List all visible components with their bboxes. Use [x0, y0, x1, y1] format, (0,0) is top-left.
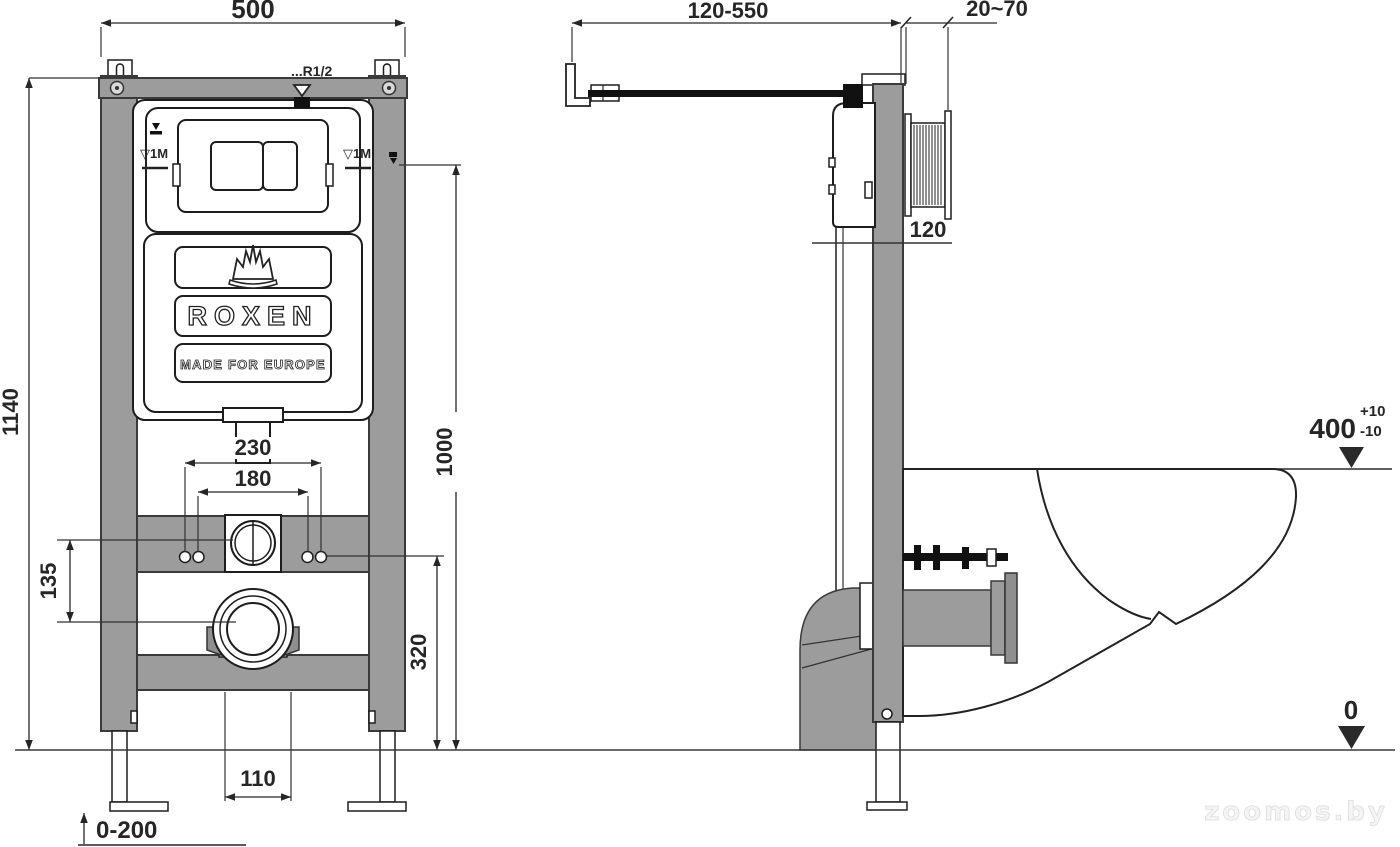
- front-view: ▽1M ▽1M ROXEN MADE FOR EUROPE ...R1/2: [0, 0, 468, 845]
- bracket-rod: [588, 90, 844, 97]
- post-notch-right: [369, 711, 375, 723]
- floor-level-marker: 0: [1338, 695, 1365, 749]
- dim-wall-finish-range: 20~70: [901, 0, 1028, 110]
- plate-clip-right: [326, 164, 333, 186]
- frame-post-side: [873, 84, 903, 722]
- dim-320-label: 320: [406, 634, 431, 671]
- dim-frame-height: 1140: [0, 78, 102, 750]
- level-triangle-400: [1339, 447, 1364, 468]
- elbow-coupling: [860, 583, 873, 649]
- brand-name: ROXEN: [187, 301, 318, 331]
- dim-width-label: 500: [231, 0, 274, 24]
- dim-0-200-label: 0-200: [96, 817, 157, 844]
- dim-135-label: 135: [36, 563, 61, 600]
- foot-side: [867, 802, 907, 810]
- wall-hook: [566, 64, 590, 106]
- frame-post-left: [101, 76, 137, 731]
- dim-120-label: 120: [910, 217, 947, 242]
- flush-plate: [173, 120, 333, 212]
- brand-logo: ROXEN MADE FOR EUROPE: [175, 245, 331, 382]
- dim-outer-spacing-label: 230: [235, 435, 272, 460]
- level-triangle-0: [1338, 726, 1365, 749]
- flush-sleeve: [905, 111, 951, 219]
- plate-center-marker-icon: [389, 152, 397, 157]
- drain-outlet: [207, 589, 299, 669]
- water-inlet-thread-label: ...R1/2: [291, 63, 332, 79]
- dim-400-label: 400: [1309, 413, 1356, 444]
- wall-bracket: [566, 64, 863, 108]
- inlet-flange: [225, 515, 281, 572]
- drawing-canvas: ▽1M ▽1M ROXEN MADE FOR EUROPE ...R1/2: [0, 0, 1400, 847]
- side-view: 120-550 20~70 120 400 +10 -10: [566, 0, 1392, 810]
- top-crossbar: [99, 78, 407, 98]
- dim-20-70-label: 20~70: [966, 0, 1028, 21]
- dim-leg-adjustment: 0-200: [78, 813, 246, 845]
- dim-outlet-offset: 110: [225, 692, 291, 801]
- installation-frame-technical-drawing: ▽1M ▽1M ROXEN MADE FOR EUROPE ...R1/2: [0, 0, 1400, 847]
- dim-inner-spacing-label: 180: [235, 466, 272, 491]
- dim-height-label: 1140: [0, 388, 23, 436]
- plate-clip-left: [173, 164, 180, 186]
- dim-1000-label: 1000: [432, 428, 457, 477]
- level-icon-left-base: [150, 131, 162, 135]
- crossbar-bolt-left-center: [115, 86, 119, 90]
- flush-button-small[interactable]: [263, 142, 297, 190]
- watermark: zoomos.by: [1204, 797, 1388, 827]
- brand-tagline: MADE FOR EUROPE: [180, 357, 326, 372]
- bowl-height-marker: 400 +10 -10: [1309, 403, 1385, 468]
- dim-400-tol-plus: +10: [1360, 403, 1385, 420]
- leg-side: [876, 722, 900, 802]
- post-adjust-hole: [882, 709, 892, 719]
- dim-0-label: 0: [1344, 695, 1358, 725]
- dim-frame-width: 500: [101, 0, 405, 57]
- rod-clamp-block: [843, 84, 863, 108]
- level-mark-left-label: ▽1M: [140, 146, 168, 161]
- dim-bracket-range: 120-550: [572, 0, 906, 84]
- dim-120-550-label: 120-550: [688, 0, 769, 23]
- crossbar-bolt-right-center: [387, 86, 391, 90]
- inlet-connection-block: [294, 97, 310, 108]
- cistern-side: [829, 103, 875, 227]
- dim-400-tol-minus: -10: [1360, 423, 1382, 440]
- post-notch-left: [131, 711, 137, 723]
- level-mark-right-label: ▽1M: [343, 146, 371, 161]
- flush-bend-stub: [223, 408, 283, 422]
- frame-post-right: [369, 76, 405, 731]
- flush-button-large[interactable]: [211, 142, 263, 190]
- dim-110-label: 110: [240, 766, 276, 791]
